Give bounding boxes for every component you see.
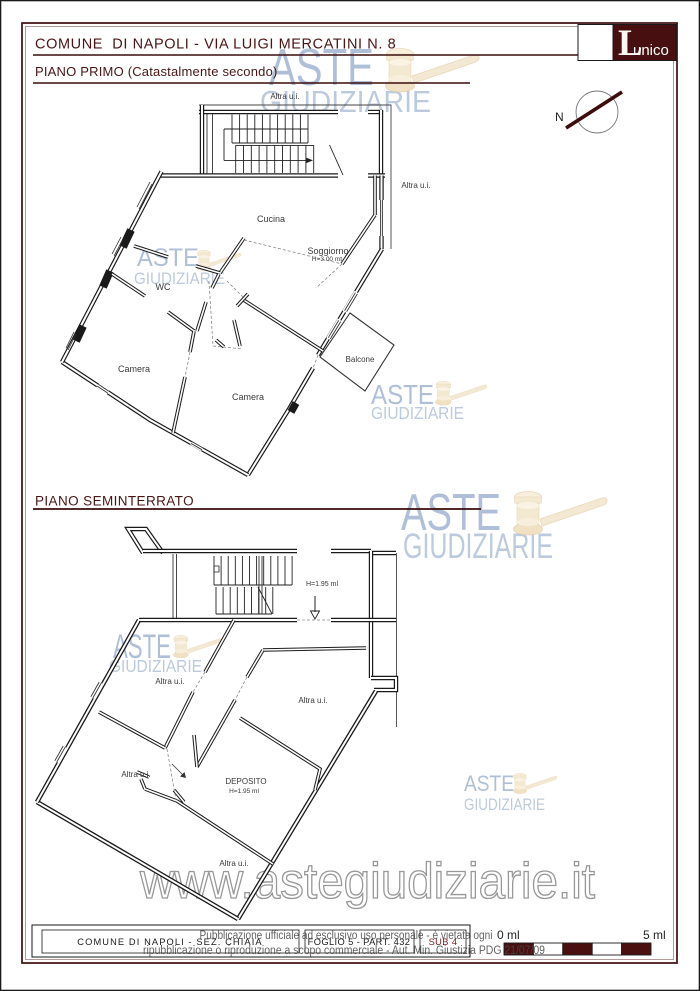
svg-text:Altra u.i.: Altra u.i. bbox=[219, 859, 248, 868]
svg-text:Altra u.i.: Altra u.i. bbox=[121, 770, 150, 779]
svg-text:ASTE: ASTE bbox=[464, 771, 514, 796]
svg-text:H=3.00 mt: H=3.00 mt bbox=[312, 256, 342, 263]
svg-text:H=1.95 ml: H=1.95 ml bbox=[306, 581, 339, 588]
svg-text:PIANO SEMINTERRATO: PIANO SEMINTERRATO bbox=[35, 494, 194, 509]
svg-text:unico: unico bbox=[633, 42, 669, 59]
svg-text:H=1.95 ml: H=1.95 ml bbox=[229, 788, 259, 795]
svg-text:Camera: Camera bbox=[232, 392, 264, 402]
svg-text:Soggiorno: Soggiorno bbox=[307, 246, 348, 256]
svg-text:Balcone: Balcone bbox=[346, 355, 375, 364]
svg-text:ripubblicazione o riproduzione: ripubblicazione o riproduzione a scopo c… bbox=[143, 945, 545, 957]
svg-text:DEPOSITO: DEPOSITO bbox=[225, 777, 266, 786]
svg-text:Pubblicazione ufficiale ad esc: Pubblicazione ufficiale ad esclusivo uso… bbox=[200, 930, 493, 942]
svg-text:Altra u.i.: Altra u.i. bbox=[155, 677, 184, 686]
svg-text:GIUDIZIARIE: GIUDIZIARIE bbox=[109, 656, 202, 676]
svg-text:5 ml: 5 ml bbox=[643, 928, 666, 942]
svg-text:Altra u.i.: Altra u.i. bbox=[298, 696, 327, 705]
svg-text:0 ml: 0 ml bbox=[497, 928, 520, 942]
svg-text:Cucina: Cucina bbox=[257, 214, 285, 224]
svg-text:GIUDIZIARIE: GIUDIZIARIE bbox=[464, 796, 545, 814]
svg-text:Camera: Camera bbox=[118, 364, 150, 374]
svg-text:GIUDIZIARIE: GIUDIZIARIE bbox=[371, 403, 464, 423]
svg-text:PIANO PRIMO (Catastalmente sec: PIANO PRIMO (Catastalmente secondo) bbox=[35, 64, 278, 79]
svg-text:Altra u.i.: Altra u.i. bbox=[270, 92, 299, 101]
svg-text:Altra u.i.: Altra u.i. bbox=[401, 181, 430, 190]
svg-text:COMUNE DI NAPOLI - VIA LUIGI: COMUNE DI NAPOLI - VIA LUIGI MERCATINI N… bbox=[35, 37, 396, 53]
svg-text:N: N bbox=[555, 110, 564, 124]
svg-text:WC: WC bbox=[156, 282, 171, 292]
